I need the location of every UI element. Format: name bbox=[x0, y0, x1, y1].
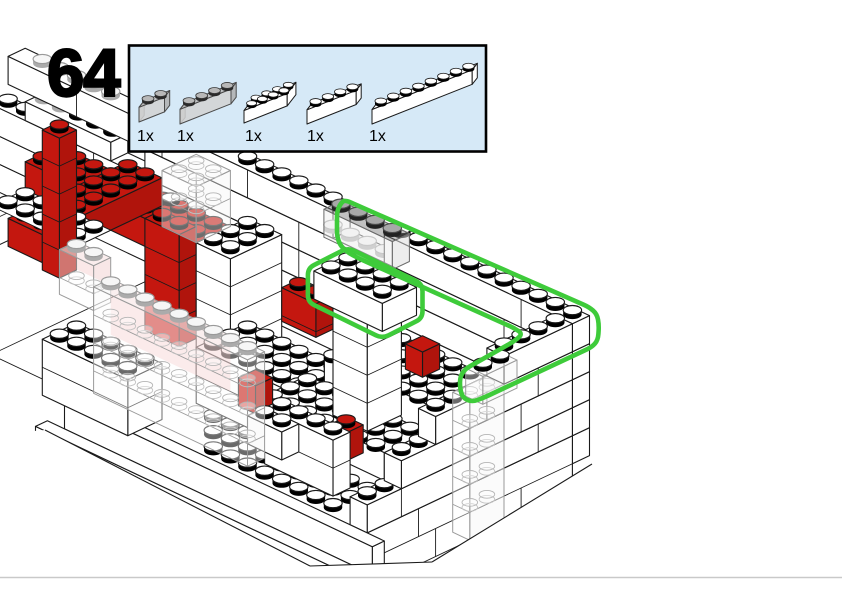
svg-text:64: 64 bbox=[47, 36, 120, 111]
svg-text:1x: 1x bbox=[245, 128, 262, 145]
svg-text:1x: 1x bbox=[137, 128, 154, 145]
svg-text:1x: 1x bbox=[369, 128, 386, 145]
svg-text:1x: 1x bbox=[307, 128, 324, 145]
svg-text:1x: 1x bbox=[177, 128, 194, 145]
